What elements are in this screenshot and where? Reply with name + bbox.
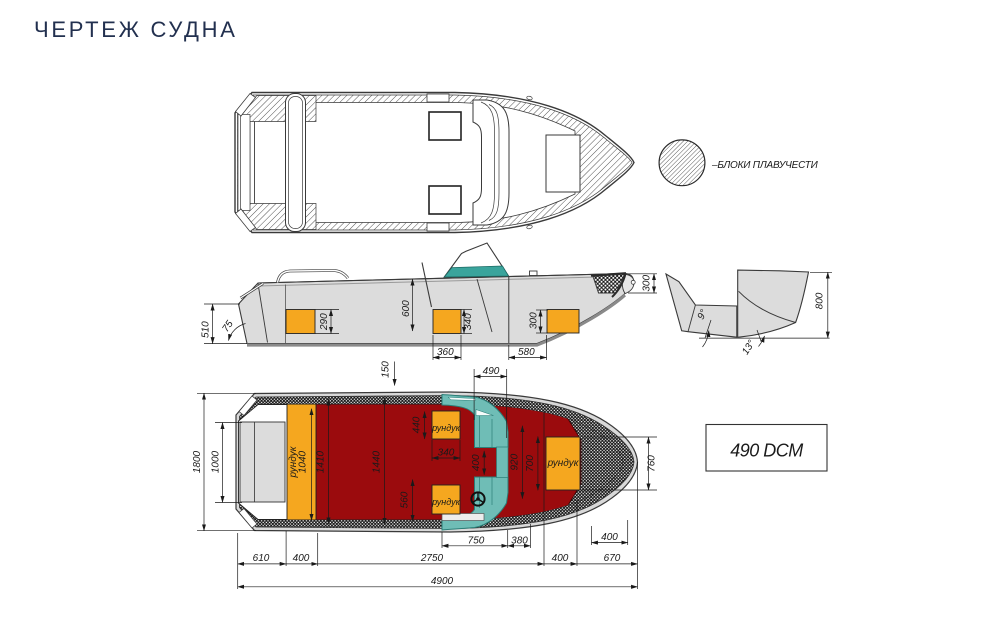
svg-text:750: 750	[468, 535, 485, 546]
svg-text:1800: 1800	[192, 450, 203, 473]
svg-text:2750: 2750	[420, 553, 444, 564]
svg-text:290: 290	[319, 313, 330, 331]
svg-text:490: 490	[483, 366, 500, 377]
svg-text:1440: 1440	[372, 450, 383, 473]
svg-text:560: 560	[400, 491, 411, 508]
svg-text:1040: 1040	[298, 450, 309, 473]
svg-text:1000: 1000	[211, 450, 222, 473]
svg-text:600: 600	[401, 300, 412, 317]
svg-text:340: 340	[463, 313, 474, 330]
svg-text:рундук: рундук	[547, 458, 580, 469]
svg-text:400: 400	[601, 532, 618, 543]
svg-text:ЧЕРТЕЖ СУДНА: ЧЕРТЕЖ СУДНА	[34, 17, 238, 42]
svg-text:800: 800	[815, 292, 826, 309]
svg-text:380: 380	[511, 535, 528, 546]
svg-text:490 DCM: 490 DCM	[730, 441, 803, 461]
svg-text:920: 920	[509, 453, 520, 470]
svg-text:рундук: рундук	[431, 497, 461, 507]
svg-text:150: 150	[381, 361, 392, 378]
svg-text:510: 510	[201, 321, 212, 338]
svg-text:610: 610	[253, 553, 270, 564]
svg-text:700: 700	[525, 455, 536, 472]
svg-text:760: 760	[647, 455, 658, 472]
svg-text:рундук: рундук	[431, 423, 461, 433]
svg-text:580: 580	[518, 347, 535, 358]
svg-text:400: 400	[471, 454, 482, 471]
svg-text:360: 360	[437, 347, 454, 358]
svg-text:4900: 4900	[431, 576, 454, 587]
svg-text:340: 340	[438, 448, 455, 459]
svg-text:300: 300	[529, 312, 540, 329]
svg-text:670: 670	[604, 553, 621, 564]
svg-text:–БЛОКИ ПЛАВУЧЕСТИ: –БЛОКИ ПЛАВУЧЕСТИ	[711, 160, 819, 171]
svg-text:1410: 1410	[316, 450, 327, 473]
svg-text:400: 400	[552, 553, 569, 564]
svg-text:440: 440	[412, 416, 423, 433]
svg-text:300: 300	[642, 275, 653, 292]
svg-text:400: 400	[293, 553, 310, 564]
